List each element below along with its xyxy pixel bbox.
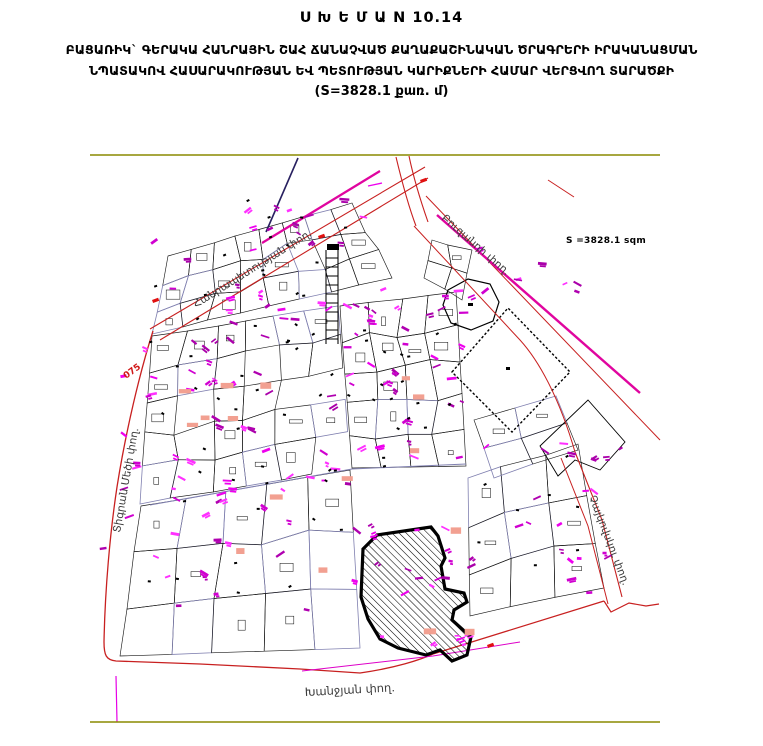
parcel-number-mark: [304, 608, 310, 612]
salmon-parcel-fill: [451, 527, 461, 533]
parcel-number-mark: [573, 281, 582, 287]
salmon-parcel-fill: [201, 416, 210, 421]
parcel-cell: [424, 261, 452, 289]
octagon-building-mark: [468, 303, 473, 306]
acquisition-area-hatched: [361, 527, 471, 661]
parcel-number-mark: [339, 198, 349, 201]
door-mark: [436, 332, 440, 335]
hanrapetutyan-edge-2: [160, 178, 428, 340]
parcel-cell: [127, 548, 177, 609]
door-mark: [344, 226, 347, 228]
stair-top-mark: [327, 244, 339, 250]
parcel-cell: [157, 276, 188, 313]
hanrapetutyan-centerline: [262, 171, 380, 243]
parcel-number-mark: [253, 371, 262, 376]
door-mark: [548, 494, 551, 496]
parcel-cell: [223, 484, 267, 544]
parcel-cell: [349, 250, 392, 286]
door-mark: [315, 261, 318, 263]
parcel-number-mark: [450, 563, 453, 565]
parcel-cell: [311, 399, 348, 437]
building-outline: [289, 420, 302, 423]
door-mark: [198, 470, 202, 473]
parcel-number-mark: [264, 303, 270, 309]
building-outline: [230, 468, 236, 474]
parcel-number-mark: [319, 449, 328, 456]
parcel-number-mark: [515, 523, 524, 528]
building-outline: [493, 429, 505, 434]
street-label-khanjyan: Խանջյան փող.: [304, 680, 395, 699]
door-mark: [283, 414, 286, 416]
salmon-parcel-fill: [402, 376, 410, 380]
parcel-cell: [501, 455, 549, 512]
door-mark: [217, 397, 221, 400]
parcel-number-mark: [258, 289, 263, 294]
building-outline: [568, 521, 581, 525]
door-mark: [400, 353, 404, 356]
parcel-cell: [120, 603, 174, 656]
door-mark: [223, 254, 227, 257]
parcel-number-mark: [135, 465, 140, 467]
parcel-cell: [345, 372, 378, 402]
door-mark: [148, 580, 151, 582]
building-outline: [452, 256, 461, 260]
door-mark: [295, 292, 299, 295]
door-mark: [312, 518, 316, 521]
door-mark: [407, 355, 410, 357]
parcel-number-mark: [225, 483, 231, 485]
door-mark: [372, 398, 376, 401]
parcel-cell: [213, 236, 241, 270]
parcel-cell: [340, 303, 369, 343]
building-outline: [409, 350, 421, 353]
parcel-number-mark: [286, 519, 292, 522]
salmon-parcel-fill: [342, 476, 353, 481]
boundary-hook: [604, 601, 659, 612]
parcel-number-mark: [371, 525, 375, 528]
building-outline: [155, 385, 168, 389]
parcel-number-mark: [176, 604, 182, 607]
parcel-cell: [432, 393, 464, 434]
door-mark: [319, 393, 323, 396]
parcel-cell: [235, 230, 263, 261]
door-mark: [302, 295, 305, 297]
parcel-number-mark: [216, 541, 222, 543]
door-mark: [237, 427, 240, 430]
parcel-number-mark: [456, 456, 463, 460]
parcel-number-mark: [459, 311, 468, 314]
door-mark: [176, 578, 179, 581]
parcel-number-mark: [226, 309, 233, 311]
parcel-number-mark: [556, 522, 562, 527]
magenta-vertical-line: [116, 676, 117, 722]
building-outline: [237, 517, 247, 521]
salmon-parcel-fill: [270, 494, 283, 499]
parcel-number-mark: [186, 261, 191, 263]
parcel-number-mark: [258, 294, 263, 297]
parcel-number-mark: [223, 480, 232, 482]
parcel-number-mark: [426, 312, 434, 316]
parcel-number-mark: [287, 208, 293, 212]
parcel-number-mark: [407, 440, 412, 443]
building-outline: [382, 317, 386, 326]
parcel-cell: [262, 530, 311, 593]
parcel-cell: [375, 434, 411, 467]
door-mark: [262, 273, 266, 276]
door-mark: [382, 457, 385, 459]
building-outline: [225, 431, 235, 439]
parcel-number-mark: [205, 579, 208, 581]
parcel-number-mark: [387, 384, 392, 387]
parcel-number-mark: [165, 575, 171, 579]
parcel-number-mark: [226, 336, 235, 344]
building-outline: [280, 563, 293, 571]
parcel-number-mark: [526, 521, 532, 525]
door-mark: [534, 564, 537, 566]
salmon-parcel-fill: [465, 629, 475, 635]
red-annotation-mark: [420, 178, 427, 183]
parcel-number-mark: [150, 238, 158, 245]
parcel-number-mark: [351, 579, 358, 583]
street-label-buzand: Բուզանդի փող.: [439, 212, 512, 278]
parcel-number-mark: [562, 282, 567, 286]
parcel-cell: [432, 429, 466, 466]
door-mark: [234, 562, 237, 564]
parcel-cell: [469, 558, 511, 616]
parcel-number-mark: [574, 290, 580, 294]
door-mark: [267, 216, 271, 219]
parcel-number-mark: [401, 326, 410, 332]
parcel-number-mark: [319, 304, 325, 306]
parcel-number-mark: [339, 245, 344, 247]
parcel-number-mark: [349, 382, 355, 386]
document-page: Ս Խ Ե Մ Ա N 10.14 ԲԱՑԱՌԻԿ` ԳԵՐԱԿԱ ՀԱՆՐԱՅ…: [0, 0, 763, 746]
door-mark: [401, 380, 405, 383]
door-mark: [363, 329, 366, 331]
salmon-parcel-fill: [187, 423, 198, 427]
parcel-cell: [325, 259, 358, 292]
building-outline: [154, 478, 159, 485]
parcel-number-mark: [325, 465, 328, 468]
salmon-parcel-fill: [319, 567, 328, 572]
salmon-parcel-fill: [221, 383, 234, 388]
parcel-number-mark: [560, 552, 564, 554]
parcel-cell: [510, 546, 555, 607]
parcel-number-mark: [605, 459, 610, 461]
parcel-number-mark: [170, 532, 179, 536]
parcel-number-mark: [447, 377, 457, 381]
parcel-number-mark: [216, 595, 220, 597]
magenta-dash-top: [368, 183, 382, 186]
parcel-number-mark: [177, 475, 185, 481]
building-outline: [157, 346, 168, 351]
door-mark: [396, 427, 400, 430]
parcel-cell: [189, 243, 215, 276]
parcel-number-mark: [602, 552, 606, 555]
parcel-number-mark: [325, 461, 330, 465]
door-mark: [365, 339, 368, 341]
parcel-number-mark: [100, 547, 107, 550]
building-outline: [362, 264, 376, 269]
door-mark: [246, 199, 250, 202]
parcel-cell: [350, 436, 382, 468]
parcel-number-mark: [346, 372, 355, 377]
parcel-number-mark: [170, 288, 177, 290]
door-mark: [203, 447, 207, 450]
door-mark: [288, 585, 292, 588]
street-label-tchaikovsky: Չայկովսկու փող.: [586, 494, 631, 587]
parcel-number-mark: [191, 339, 197, 345]
door-mark: [416, 402, 419, 405]
parcel-number-mark: [380, 287, 387, 292]
top-right-fragment: [548, 180, 574, 197]
building-outline: [166, 290, 180, 299]
parcel-number-mark: [265, 390, 273, 396]
parcel-number-mark: [364, 306, 370, 311]
parcel-cell: [214, 386, 245, 421]
parcel-number-mark: [343, 303, 353, 310]
building-outline: [352, 240, 365, 245]
parcel-cell: [309, 530, 357, 589]
parcel-number-mark: [471, 297, 476, 301]
parcel-number-mark: [567, 557, 574, 564]
building-outline: [382, 343, 393, 351]
salmon-parcel-fill: [413, 394, 424, 399]
door-mark: [237, 591, 240, 594]
salmon-parcel-fill: [424, 628, 436, 634]
parcel-number-mark: [603, 456, 610, 458]
parcel-number-mark: [533, 495, 541, 500]
parcel-number-mark: [280, 488, 285, 492]
parcel-cell: [263, 271, 299, 306]
building-outline: [238, 620, 245, 630]
parcel-number-mark: [604, 555, 607, 557]
cadastral-map: Հանրապետության փող. Բուզանդի փող. Տիգրան…: [0, 0, 763, 746]
door-mark: [254, 325, 257, 327]
building-outline: [255, 462, 266, 466]
parcel-number-mark: [354, 332, 358, 336]
building-outline: [537, 414, 548, 417]
parcel-number-mark: [261, 334, 270, 338]
parcel-number-mark: [188, 369, 196, 374]
salmon-parcel-fill: [410, 448, 420, 453]
door-mark: [154, 285, 157, 288]
parcel-number-mark: [467, 563, 476, 569]
parcel-number-mark: [207, 363, 212, 366]
parcel-number-mark: [432, 364, 441, 369]
parcel-number-mark: [406, 422, 412, 425]
parcel-number-mark: [341, 201, 348, 203]
door-mark: [256, 389, 259, 392]
parcel-number-mark: [402, 343, 408, 346]
right-parcel-outline: [540, 400, 625, 476]
building-outline: [327, 418, 335, 423]
stair-symbol: [326, 250, 338, 344]
parcel-cell: [341, 233, 379, 259]
parcel-cell: [273, 311, 313, 345]
building-outline: [280, 282, 287, 290]
building-outline: [355, 417, 367, 422]
salmon-parcel-fill: [179, 389, 191, 393]
fenced-parcel: [452, 308, 570, 432]
building-outline: [482, 488, 490, 497]
door-mark: [576, 506, 579, 508]
parcel-number-mark: [286, 473, 294, 479]
door-mark: [232, 479, 235, 481]
building-outline: [485, 541, 496, 545]
door-mark: [347, 394, 351, 397]
door-mark: [424, 427, 427, 429]
door-mark: [286, 341, 289, 343]
building-outline: [315, 320, 327, 324]
door-mark: [234, 408, 237, 410]
parcel-number-mark: [559, 549, 564, 551]
parcel-number-mark: [441, 526, 450, 532]
north-street-edge-2: [409, 156, 428, 222]
parcel-cell: [425, 292, 458, 333]
parcel-number-mark: [559, 442, 568, 445]
parcel-number-mark: [442, 295, 449, 298]
parcel-number-mark: [277, 308, 285, 312]
parcel-number-mark: [317, 301, 326, 305]
parcel-cell: [521, 423, 578, 464]
parcel-number-mark: [236, 287, 239, 289]
door-mark: [340, 529, 343, 531]
area-size-label: S =3828.1 sqm: [566, 236, 646, 246]
parcel-number-mark: [172, 454, 179, 459]
parcel-number-mark: [279, 317, 288, 320]
parcel-number-mark: [344, 346, 352, 348]
building-outline: [391, 412, 396, 421]
building-outline: [191, 572, 201, 577]
building-outline: [356, 353, 365, 362]
parcel-number-mark: [153, 555, 159, 559]
parcel-cell: [425, 325, 460, 362]
street-label-hanrapetutyan: Հանրապետության փող.: [191, 228, 314, 311]
door-mark: [334, 469, 337, 471]
parcel-number-mark: [481, 287, 489, 295]
parcel-number-mark: [448, 560, 453, 563]
parcel-number-mark: [397, 307, 401, 310]
parcel-cell: [145, 396, 178, 435]
parcel-cell: [504, 503, 554, 559]
parcel-cell: [264, 589, 315, 651]
building-outline: [326, 499, 339, 506]
door-mark: [295, 347, 299, 350]
door-mark: [257, 508, 260, 510]
parcel-cell: [484, 438, 533, 478]
parcel-cell: [397, 296, 428, 338]
door-mark: [565, 455, 569, 458]
door-mark: [483, 483, 487, 486]
building-outline: [481, 588, 493, 594]
district-boundary: [104, 331, 604, 673]
parcel-cell: [174, 421, 215, 460]
parcel-cell: [262, 477, 310, 545]
dark-utility-line: [266, 158, 298, 232]
parcel-number-mark: [225, 541, 232, 545]
parcel-number-mark: [259, 298, 263, 301]
parcel-number-mark: [184, 258, 192, 261]
parcel-cell: [342, 333, 377, 375]
parcel-number-mark: [148, 397, 152, 400]
parcel-number-mark: [454, 289, 464, 292]
parcel-number-mark: [214, 538, 222, 541]
parcel-number-mark: [213, 592, 218, 596]
parcel-cell: [347, 400, 378, 439]
parcel-number-mark: [250, 248, 257, 251]
building-outline: [154, 521, 159, 528]
parcel-number-mark: [444, 298, 449, 300]
parcel-number-mark: [367, 362, 375, 368]
parcel-number-mark: [582, 490, 589, 492]
building-outline: [287, 453, 296, 463]
parcel-number-mark: [345, 482, 351, 486]
door-mark: [477, 541, 480, 543]
parcel-number-mark: [228, 312, 233, 314]
door-mark: [261, 465, 264, 467]
parcel-number-mark: [150, 376, 158, 380]
parcel-cell: [312, 234, 349, 269]
parcel-cell: [311, 589, 360, 650]
parcel-cell: [407, 400, 438, 435]
parcel-number-mark: [460, 400, 465, 403]
door-mark: [294, 323, 298, 326]
parcel-number-mark: [229, 320, 238, 325]
parcel-number-mark: [262, 448, 271, 454]
parcel-number-mark: [327, 394, 336, 397]
red-annotation-mark: [152, 298, 159, 303]
parcel-number-mark: [291, 318, 300, 321]
parcel-cell: [474, 408, 521, 448]
fenced-parcel-mark: [506, 367, 510, 370]
door-mark: [330, 373, 334, 376]
parcel-number-mark: [455, 635, 460, 637]
salmon-parcel-fill: [236, 548, 244, 554]
building-outline: [286, 616, 294, 624]
building-outline: [152, 414, 164, 422]
parcel-number-mark: [371, 309, 376, 314]
parcel-number-mark: [230, 490, 236, 492]
parcel-number-mark: [276, 550, 286, 557]
parcel-cell: [546, 444, 587, 503]
door-mark: [161, 412, 165, 415]
door-mark: [189, 355, 192, 357]
salmon-parcel-fill: [228, 416, 238, 421]
building-outline: [572, 566, 582, 570]
parcel-number-mark: [143, 350, 148, 353]
parcel-cell: [375, 400, 408, 440]
parcel-number-mark: [249, 225, 257, 229]
door-mark: [176, 365, 179, 367]
building-outline: [448, 451, 453, 455]
parcel-number-mark: [577, 557, 582, 560]
door-mark: [576, 549, 579, 551]
building-outline: [434, 342, 448, 350]
parcel-number-mark: [414, 529, 419, 532]
parcel-number-mark: [287, 523, 291, 526]
door-mark: [312, 333, 316, 336]
parcel-cell: [212, 594, 266, 653]
parcel-number-mark: [428, 315, 434, 318]
parcel-number-mark: [586, 591, 592, 594]
building-outline: [197, 253, 207, 260]
parcel-number-mark: [569, 455, 575, 458]
parcel-number-mark: [142, 346, 148, 350]
parcel-number-mark: [448, 551, 452, 554]
parcel-number-mark: [538, 262, 547, 266]
salmon-parcel-fill: [260, 382, 271, 388]
